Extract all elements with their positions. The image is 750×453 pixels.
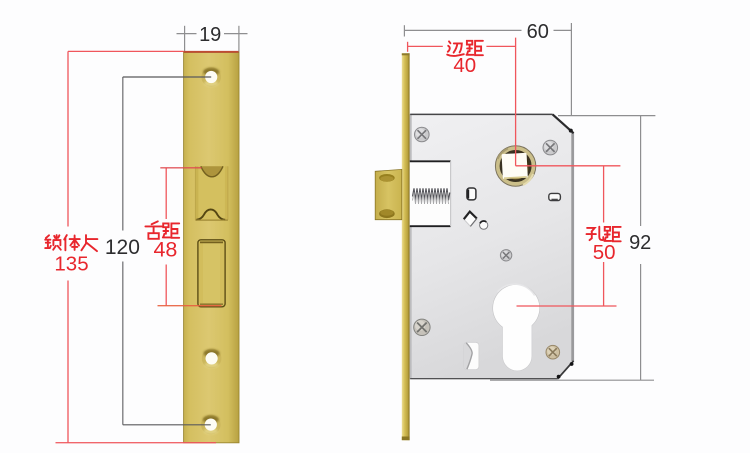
svg-text:135: 135 [54, 252, 88, 275]
svg-text:40: 40 [453, 54, 476, 77]
svg-text:60: 60 [527, 21, 549, 43]
svg-text:48: 48 [153, 237, 177, 261]
svg-text:120: 120 [105, 236, 140, 259]
svg-text:50: 50 [593, 241, 616, 264]
svg-text:19: 19 [199, 24, 221, 46]
svg-text:92: 92 [629, 232, 651, 254]
